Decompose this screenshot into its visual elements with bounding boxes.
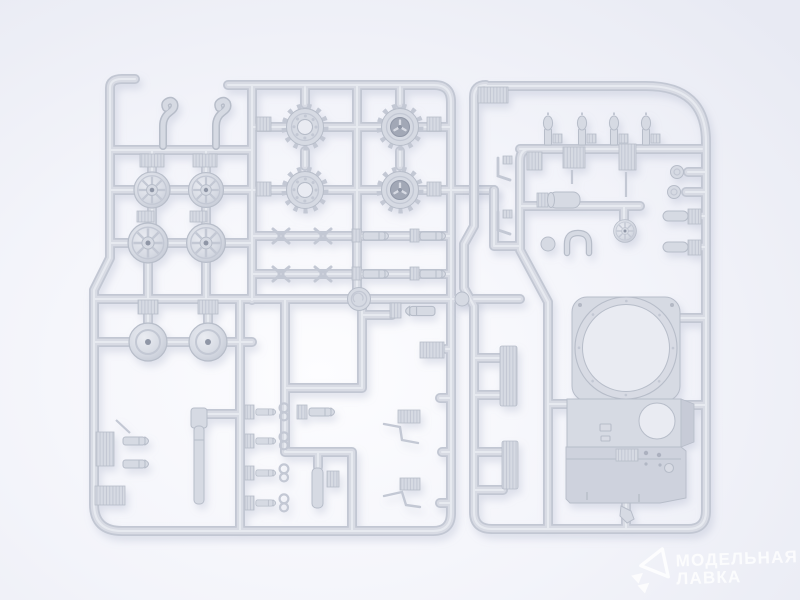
gate-pad bbox=[138, 300, 158, 314]
arch-handle-part bbox=[567, 233, 589, 253]
gun-barrel-part bbox=[191, 408, 207, 504]
small-fitting bbox=[363, 270, 389, 278]
small-wheel-part bbox=[614, 220, 637, 243]
gate-pad bbox=[140, 154, 164, 167]
wire-part bbox=[116, 420, 130, 433]
fender-part bbox=[163, 101, 175, 146]
bracket-part bbox=[498, 210, 512, 234]
watermark-line2: ЛАВКА bbox=[676, 567, 742, 588]
knob-part bbox=[671, 166, 684, 179]
mold-stamp bbox=[348, 288, 371, 311]
headlight-detail bbox=[665, 464, 674, 473]
gate-pad bbox=[352, 267, 361, 280]
gate-pad bbox=[478, 87, 508, 103]
gate-pad bbox=[137, 211, 154, 222]
cylinder-fitting bbox=[663, 240, 701, 255]
gate-pad bbox=[410, 267, 419, 280]
grab-handle-part bbox=[384, 410, 420, 443]
plate-part bbox=[95, 486, 125, 505]
small-fitting bbox=[420, 270, 446, 278]
small-fitting bbox=[420, 232, 446, 240]
cylinder-part bbox=[312, 468, 339, 508]
gate-pad bbox=[190, 211, 207, 222]
drum-part bbox=[537, 192, 580, 208]
product-photo: МОДЕЛЬНАЯ ЛАВКА bbox=[0, 0, 800, 600]
turret-ring-opening bbox=[583, 305, 670, 392]
road-wheel bbox=[187, 224, 226, 263]
small-fitting bbox=[123, 437, 149, 445]
gate-pad bbox=[256, 182, 271, 196]
dome-part bbox=[541, 237, 555, 251]
gate-pad bbox=[297, 405, 307, 419]
photo-canvas: МОДЕЛЬНАЯ ЛАВКА bbox=[0, 0, 800, 600]
bracket-part bbox=[498, 156, 512, 180]
idler-wheel bbox=[129, 323, 167, 361]
right-sprue bbox=[455, 85, 706, 529]
drive-sprocket bbox=[284, 106, 326, 148]
small-fitting bbox=[363, 232, 389, 240]
runner-tab bbox=[455, 292, 469, 306]
hatch-part bbox=[563, 147, 585, 168]
road-wheel bbox=[128, 223, 168, 263]
periscope-part bbox=[543, 113, 562, 146]
grab-handle-part bbox=[384, 478, 420, 507]
drive-sprocket bbox=[284, 169, 326, 211]
small-fitting bbox=[309, 408, 335, 416]
vent-pad-part bbox=[420, 342, 444, 358]
periscope-part bbox=[609, 113, 628, 146]
gate-pad bbox=[352, 229, 361, 242]
gate-pad bbox=[390, 303, 401, 318]
small-fitting bbox=[406, 306, 435, 315]
gate-pad bbox=[193, 154, 217, 167]
idler-wheel bbox=[189, 323, 227, 361]
driver-hatch-detail bbox=[616, 449, 638, 461]
gate-pad bbox=[96, 432, 114, 466]
periscope-part bbox=[641, 113, 660, 146]
road-wheel bbox=[189, 173, 224, 208]
hatch-part bbox=[527, 152, 542, 170]
gate-pad bbox=[198, 300, 218, 314]
tow-shackle-row bbox=[245, 403, 288, 511]
grille-part bbox=[502, 441, 518, 489]
cylinder-fitting bbox=[663, 209, 701, 224]
fender-part bbox=[216, 101, 228, 146]
gate-pad bbox=[410, 229, 419, 242]
watermark: МОДЕЛЬНАЯ ЛАВКА bbox=[631, 544, 799, 593]
hull-hatch-opening bbox=[639, 403, 675, 439]
model-lavka-logo-icon bbox=[631, 549, 668, 593]
gate-pad bbox=[427, 182, 441, 196]
left-sprue bbox=[94, 79, 494, 531]
drive-sprocket bbox=[379, 169, 421, 211]
small-fitting bbox=[123, 460, 149, 468]
hatch-part bbox=[619, 144, 636, 170]
grille-part bbox=[500, 346, 517, 406]
drive-sprocket bbox=[379, 106, 421, 148]
hull-superstructure-part bbox=[566, 297, 694, 503]
knob-part bbox=[668, 186, 681, 199]
gate-pad bbox=[256, 117, 271, 131]
periscope-part bbox=[577, 113, 596, 146]
gate-pad bbox=[427, 117, 441, 131]
road-wheel bbox=[134, 172, 170, 208]
